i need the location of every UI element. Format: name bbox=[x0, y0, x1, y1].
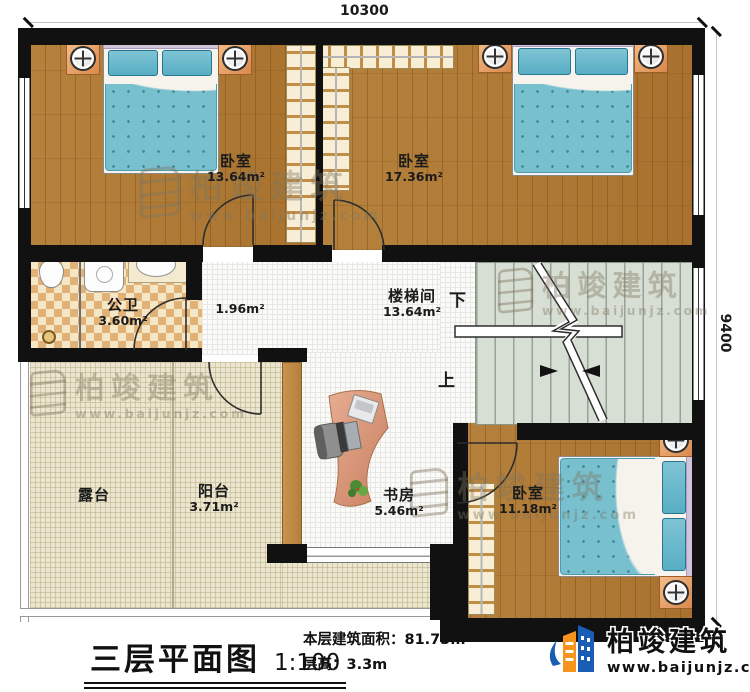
nightstand bbox=[66, 42, 100, 75]
toilet-bowl bbox=[39, 259, 64, 288]
wall-terrace-north bbox=[18, 348, 200, 362]
wall-bedroom3-west bbox=[453, 423, 468, 544]
stairs-down-label: 下 bbox=[449, 286, 466, 311]
table-lamp-icon bbox=[663, 580, 689, 605]
table-lamp-icon bbox=[482, 44, 508, 69]
room-label-bedroom-top-left: 卧室 13.64m² bbox=[190, 153, 282, 185]
parapet-bottom bbox=[20, 608, 448, 617]
wall-bedrooms-south bbox=[382, 245, 705, 262]
wall-top bbox=[18, 28, 705, 45]
wall-stairwell-south bbox=[517, 423, 705, 440]
window bbox=[692, 268, 705, 400]
wall-right bbox=[692, 45, 705, 75]
room-label-hallway: 1.96m² bbox=[194, 302, 286, 316]
nightstand bbox=[659, 576, 693, 609]
floor-drain-icon bbox=[42, 330, 56, 344]
outdoor-strip-floor bbox=[282, 562, 440, 608]
brand-name: 柏竣建筑 bbox=[607, 620, 750, 659]
brand-logo: 柏竣建筑 www.baijunjz.com bbox=[545, 620, 750, 676]
room-label-terrace: 露台 bbox=[48, 487, 140, 504]
floor-height-line: 层高：3.3m bbox=[303, 653, 472, 678]
title-underline bbox=[84, 687, 346, 689]
window bbox=[692, 75, 705, 215]
floor-area-line: 本层建筑面积：81.73m² bbox=[303, 628, 472, 653]
pillow bbox=[662, 518, 686, 571]
blanket bbox=[560, 458, 655, 575]
parapet-left bbox=[20, 356, 29, 622]
wall-bedrooms-south bbox=[253, 245, 332, 262]
dimension-line-top bbox=[28, 22, 704, 23]
window bbox=[18, 78, 31, 208]
bedroom-top-right-floor bbox=[322, 44, 693, 250]
stairs-up-label: 上 bbox=[438, 366, 455, 391]
table-lamp-icon bbox=[222, 46, 248, 71]
pillow bbox=[162, 50, 212, 76]
table-lamp-icon bbox=[70, 46, 96, 71]
wall-left bbox=[18, 45, 31, 78]
room-label-bathroom: 公卫 3.60m² bbox=[77, 297, 169, 329]
wall-bedrooms-south bbox=[18, 245, 203, 262]
nightstand bbox=[218, 42, 252, 75]
floor-plan-canvas: 10300 9400 bbox=[0, 0, 750, 692]
room-label-balcony: 阳台 3.71m² bbox=[168, 483, 260, 515]
window bbox=[307, 547, 430, 563]
page-title: 三层平面图 bbox=[90, 634, 260, 679]
stairs bbox=[475, 262, 694, 425]
brand-website: www.baijunjz.com bbox=[607, 660, 750, 676]
pillow bbox=[662, 461, 686, 514]
dimension-width-label: 10300 bbox=[340, 3, 389, 19]
pillow bbox=[108, 50, 158, 76]
wardrobe bbox=[286, 45, 316, 243]
balcony-side-wall bbox=[282, 362, 302, 548]
wardrobe bbox=[322, 67, 350, 191]
room-label-bedroom-bottom-right: 卧室 11.18m² bbox=[482, 485, 574, 517]
blanket bbox=[514, 84, 632, 173]
washing-machine-door bbox=[96, 266, 113, 283]
table-lamp-icon bbox=[638, 44, 664, 69]
wall-bedroom3-west bbox=[430, 544, 468, 620]
pillow bbox=[575, 48, 628, 75]
wall-between-bedrooms bbox=[316, 45, 323, 245]
drawing-info: 本层建筑面积：81.73m² 层高：3.3m bbox=[303, 628, 472, 677]
wardrobe bbox=[322, 45, 454, 69]
brand-logo-icon bbox=[545, 620, 599, 676]
pillow bbox=[518, 48, 571, 75]
dimension-height-label: 9400 bbox=[717, 313, 733, 353]
wall-study-south bbox=[267, 544, 307, 563]
wall-left bbox=[18, 208, 31, 362]
room-label-stairwell: 楼梯间 13.64m² bbox=[362, 288, 462, 320]
wall-bathroom-east bbox=[186, 245, 202, 300]
wall-terrace-north bbox=[258, 348, 307, 362]
room-label-bedroom-top-right: 卧室 17.36m² bbox=[368, 153, 460, 185]
room-label-study: 书房 5.46m² bbox=[353, 487, 445, 519]
